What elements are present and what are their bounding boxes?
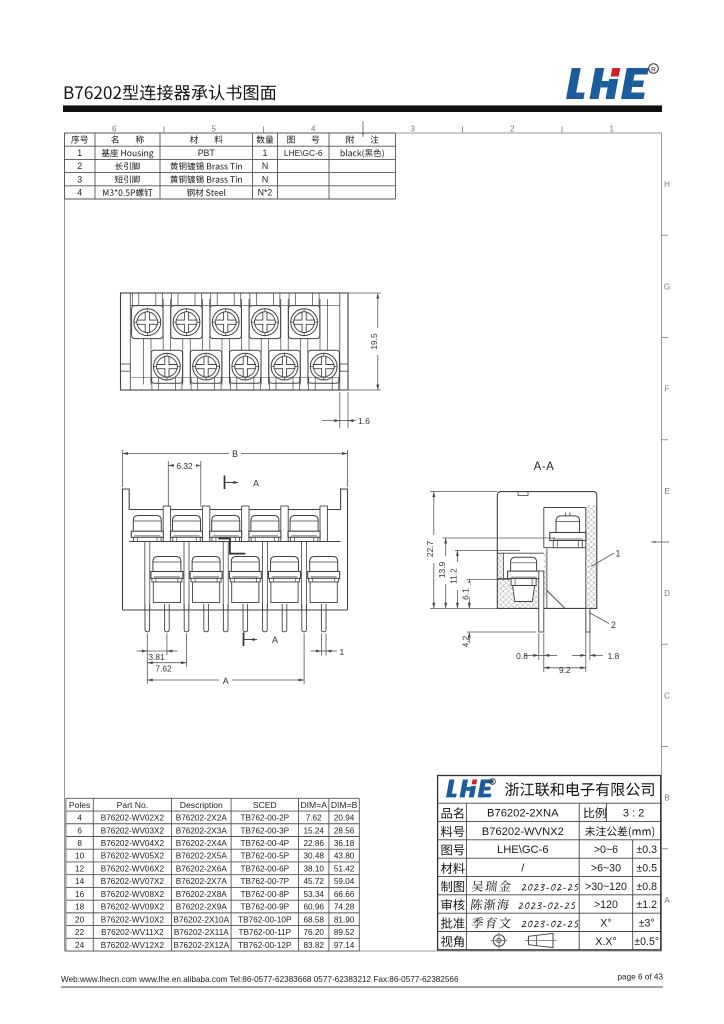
svg-text:2: 2 xyxy=(77,161,82,171)
svg-text:TB762-00-5P: TB762-00-5P xyxy=(240,852,289,861)
svg-text:22.7: 22.7 xyxy=(425,541,435,558)
svg-text:12: 12 xyxy=(75,864,85,873)
svg-text:13.9: 13.9 xyxy=(437,562,447,579)
svg-text:6: 6 xyxy=(77,826,82,835)
svg-text:43.80: 43.80 xyxy=(334,852,355,861)
svg-text:±3°: ±3° xyxy=(639,917,655,929)
svg-text:B76202-WV03X2: B76202-WV03X2 xyxy=(101,826,165,835)
svg-text:22: 22 xyxy=(75,928,85,937)
svg-text:N*2: N*2 xyxy=(258,188,273,198)
svg-text:DIM=A: DIM=A xyxy=(300,800,327,810)
svg-text:TB762-00-11P: TB762-00-11P xyxy=(238,928,291,937)
svg-text:F: F xyxy=(665,385,670,394)
svg-text:Part No.: Part No. xyxy=(117,800,149,810)
svg-text:1: 1 xyxy=(340,647,345,657)
svg-text:1: 1 xyxy=(77,148,82,158)
svg-text:±1.2: ±1.2 xyxy=(636,899,657,911)
svg-text:30.48: 30.48 xyxy=(303,852,324,861)
svg-text:B76202-WVNX2: B76202-WVNX2 xyxy=(482,826,564,838)
svg-text:1: 1 xyxy=(616,549,621,559)
svg-text:2: 2 xyxy=(611,620,616,630)
svg-text:Web:www.lhecn.com www.lhe: Web:www.lhecn.com www.lhe.en.alibaba.com… xyxy=(61,975,459,984)
svg-text:>0~6: >0~6 xyxy=(594,844,618,856)
svg-text:B76202-WV12X2: B76202-WV12X2 xyxy=(101,941,165,950)
svg-text:A: A xyxy=(253,479,259,489)
svg-text:SCED: SCED xyxy=(253,800,277,810)
svg-text:3 : 2: 3 : 2 xyxy=(623,808,644,820)
svg-text:B76202-WV09X2: B76202-WV09X2 xyxy=(101,903,165,912)
svg-text:8: 8 xyxy=(77,839,82,848)
svg-text:1.8: 1.8 xyxy=(608,651,620,661)
svg-text:N: N xyxy=(262,161,268,171)
svg-text:6.1: 6.1 xyxy=(460,588,470,600)
svg-text:14: 14 xyxy=(75,877,85,886)
svg-text:±0.8: ±0.8 xyxy=(636,881,657,893)
svg-text:A: A xyxy=(223,676,229,686)
svg-text:10: 10 xyxy=(75,852,85,861)
svg-text:B76202-WV10X2: B76202-WV10X2 xyxy=(101,915,165,924)
svg-text:X°: X° xyxy=(600,917,611,929)
svg-text:59.04: 59.04 xyxy=(334,877,355,886)
svg-text:81.90: 81.90 xyxy=(334,915,355,924)
svg-text:3: 3 xyxy=(410,125,415,134)
svg-text:7.62: 7.62 xyxy=(306,814,322,823)
svg-text:89.52: 89.52 xyxy=(334,928,355,937)
svg-text:Description: Description xyxy=(180,800,223,810)
svg-text:TB762-00-9P: TB762-00-9P xyxy=(240,903,289,912)
svg-text:Poles: Poles xyxy=(69,800,91,810)
svg-text:76.20: 76.20 xyxy=(303,928,324,937)
svg-text:>30~120: >30~120 xyxy=(585,881,627,893)
svg-text:B76202-2X4A: B76202-2X4A xyxy=(176,839,228,848)
svg-text:X.X°: X.X° xyxy=(595,936,616,948)
svg-text:4.2: 4.2 xyxy=(460,635,470,647)
svg-text:A: A xyxy=(272,635,278,645)
svg-text:B: B xyxy=(664,794,669,803)
svg-text:TB762-00-2P: TB762-00-2P xyxy=(240,814,289,823)
svg-text:68.58: 68.58 xyxy=(303,915,324,924)
svg-text:20: 20 xyxy=(75,915,85,924)
svg-text:TB762-00-10P: TB762-00-10P xyxy=(238,915,292,924)
svg-text:1.6: 1.6 xyxy=(358,416,370,426)
svg-text:C: C xyxy=(664,691,670,700)
svg-text:/: / xyxy=(521,863,525,875)
svg-text:16: 16 xyxy=(75,890,85,899)
svg-text:TB762-00-6P: TB762-00-6P xyxy=(240,864,289,873)
svg-text:20.94: 20.94 xyxy=(334,814,355,823)
svg-text:B: B xyxy=(232,449,238,459)
svg-text:>6~30: >6~30 xyxy=(591,862,621,874)
svg-text:TB762-00-4P: TB762-00-4P xyxy=(240,839,289,848)
svg-text:4: 4 xyxy=(77,814,82,823)
svg-text:15.24: 15.24 xyxy=(303,826,324,835)
svg-text:DIM=B: DIM=B xyxy=(331,800,358,810)
svg-text:TB762-00-12P: TB762-00-12P xyxy=(238,941,292,950)
svg-text:>120: >120 xyxy=(594,899,618,911)
svg-text:B76202-2X7A: B76202-2X7A xyxy=(176,877,228,886)
svg-text:0.8: 0.8 xyxy=(516,651,528,661)
svg-text:22.86: 22.86 xyxy=(303,839,324,848)
svg-text:R: R xyxy=(651,67,656,74)
svg-text:11.2: 11.2 xyxy=(448,568,458,584)
svg-text:B76202-WV11X2: B76202-WV11X2 xyxy=(101,928,164,937)
svg-text:±0.3: ±0.3 xyxy=(636,844,657,856)
svg-text:page 6 of 43: page 6 of 43 xyxy=(617,973,663,982)
svg-text:3.81: 3.81 xyxy=(148,652,165,662)
svg-text:6: 6 xyxy=(112,125,117,134)
svg-text:1: 1 xyxy=(609,125,614,134)
svg-text:G: G xyxy=(664,282,670,291)
svg-text:53.34: 53.34 xyxy=(303,890,324,899)
svg-text:B76202-2XNA: B76202-2XNA xyxy=(487,808,559,820)
svg-text:B76202-2X5A: B76202-2X5A xyxy=(176,852,228,861)
svg-text:24: 24 xyxy=(75,941,85,950)
svg-text:5: 5 xyxy=(211,125,216,134)
svg-text:83.82: 83.82 xyxy=(303,941,324,950)
svg-text:LHE\GC-6: LHE\GC-6 xyxy=(284,148,323,158)
svg-text:±0.5°: ±0.5° xyxy=(634,936,659,948)
svg-text:A: A xyxy=(664,896,670,905)
svg-text:97.14: 97.14 xyxy=(334,941,355,950)
svg-text:B76202-2X11A: B76202-2X11A xyxy=(174,928,229,937)
svg-text:74.28: 74.28 xyxy=(334,903,355,912)
svg-text:N: N xyxy=(262,174,268,184)
svg-text:B76202-WV06X2: B76202-WV06X2 xyxy=(101,864,165,873)
svg-text:B76202-WV07X2: B76202-WV07X2 xyxy=(101,877,165,886)
svg-text:28.56: 28.56 xyxy=(334,826,355,835)
svg-text:D: D xyxy=(664,589,670,598)
svg-text:36.18: 36.18 xyxy=(334,839,355,848)
svg-text:B76202-2X3A: B76202-2X3A xyxy=(176,826,228,835)
svg-text:LHE\GC-6: LHE\GC-6 xyxy=(497,844,549,856)
svg-text:4: 4 xyxy=(311,125,316,134)
svg-text:B76202-WV04X2: B76202-WV04X2 xyxy=(101,839,165,848)
svg-text:60.96: 60.96 xyxy=(303,903,324,912)
svg-text:A-A: A-A xyxy=(534,461,555,473)
svg-text:B76202-2X9A: B76202-2X9A xyxy=(176,903,228,912)
svg-text:B76202-2X8A: B76202-2X8A xyxy=(176,890,228,899)
svg-text:1: 1 xyxy=(263,148,268,158)
svg-text:6.32: 6.32 xyxy=(176,461,193,471)
svg-text:51.42: 51.42 xyxy=(334,864,355,873)
svg-text:B76202-2X10A: B76202-2X10A xyxy=(174,915,230,924)
svg-text:PBT: PBT xyxy=(198,148,216,158)
svg-text:TB762-00-3P: TB762-00-3P xyxy=(240,826,289,835)
svg-text:B76202-2X2A: B76202-2X2A xyxy=(176,814,228,823)
svg-text:R: R xyxy=(491,779,494,784)
svg-text:4: 4 xyxy=(77,188,82,198)
svg-text:H: H xyxy=(664,180,670,189)
svg-text:B76202-2X6A: B76202-2X6A xyxy=(176,864,228,873)
svg-text:19.5: 19.5 xyxy=(369,333,379,350)
svg-text:±0.5: ±0.5 xyxy=(636,862,657,874)
svg-text:E: E xyxy=(664,487,669,496)
svg-text:45.72: 45.72 xyxy=(303,877,324,886)
svg-text:TB762-00-7P: TB762-00-7P xyxy=(240,877,289,886)
svg-text:3: 3 xyxy=(77,174,82,184)
svg-text:B76202-2X12A: B76202-2X12A xyxy=(174,941,230,950)
svg-text:66.66: 66.66 xyxy=(334,890,355,899)
svg-text:18: 18 xyxy=(75,903,85,912)
svg-text:7.62: 7.62 xyxy=(155,664,172,674)
svg-text:2: 2 xyxy=(510,125,515,134)
svg-text:38.10: 38.10 xyxy=(303,864,324,873)
svg-text:9.2: 9.2 xyxy=(559,665,571,675)
svg-text:B76202-WV05X2: B76202-WV05X2 xyxy=(101,852,165,861)
svg-text:B76202-WV08X2: B76202-WV08X2 xyxy=(101,890,165,899)
svg-text:B76202-WV02X2: B76202-WV02X2 xyxy=(101,814,165,823)
svg-text:TB762-00-8P: TB762-00-8P xyxy=(240,890,289,899)
